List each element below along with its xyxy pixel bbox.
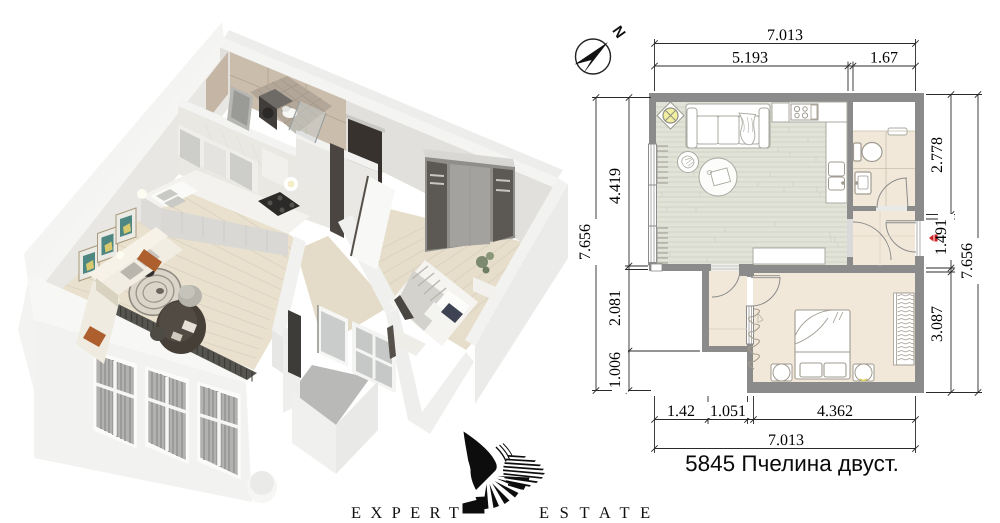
svg-text:4.362: 4.362 [817,403,853,420]
svg-text:7.013: 7.013 [767,27,803,44]
svg-text:7.656: 7.656 [959,243,976,279]
svg-text:2.081: 2.081 [607,290,624,326]
svg-text:5.193: 5.193 [732,50,768,67]
svg-text:7.656: 7.656 [577,224,594,260]
svg-text:ESTATE: ESTATE [539,503,661,522]
svg-text:5845 Пчелина двуст.: 5845 Пчелина двуст. [685,451,899,476]
svg-text:1.67: 1.67 [870,50,898,67]
svg-text:1.42: 1.42 [667,403,695,420]
svg-text:1.006: 1.006 [607,352,624,388]
svg-text:3.087: 3.087 [929,306,946,342]
svg-text:2.778: 2.778 [929,137,946,173]
svg-text:EXPERT: EXPERT [351,503,468,522]
svg-text:7.013: 7.013 [768,432,804,449]
svg-text:1.051: 1.051 [710,403,746,420]
svg-text:4.419: 4.419 [607,168,624,204]
svg-text:1.491: 1.491 [933,219,950,255]
